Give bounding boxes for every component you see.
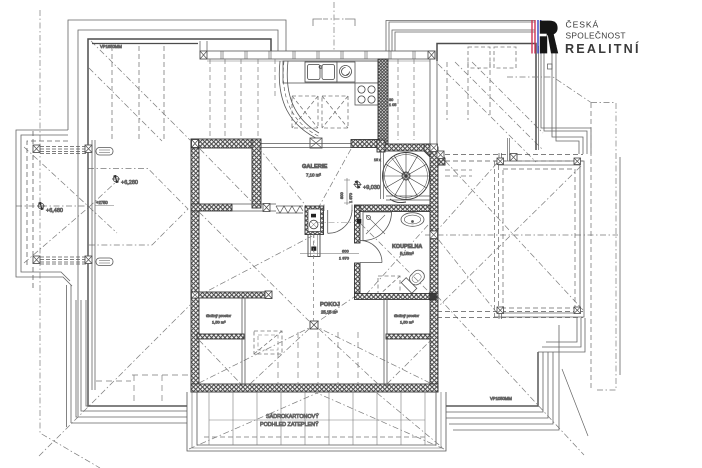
svg-text:+6,480: +6,480 <box>46 208 63 214</box>
svg-text:úložný prostor: úložný prostor <box>206 313 232 318</box>
svg-text:30: 30 <box>389 98 393 102</box>
svg-text:5,15m²: 5,15m² <box>400 251 414 256</box>
svg-text:16 x: 16 x <box>374 158 381 162</box>
svg-text:+6,280: +6,280 <box>121 180 138 186</box>
svg-text:GALERIE: GALERIE <box>302 164 327 170</box>
svg-text:600: 600 <box>342 249 349 254</box>
svg-text:1 970: 1 970 <box>339 256 350 261</box>
svg-text:+9,030: +9,030 <box>363 185 380 191</box>
svg-text:800: 800 <box>339 192 344 199</box>
svg-text:VP1050MM: VP1050MM <box>490 396 512 401</box>
svg-text:ČESKÁ: ČESKÁ <box>566 20 600 30</box>
svg-text:KOUPELNA: KOUPELNA <box>392 244 422 250</box>
svg-text:SPOLEČNOST: SPOLEČNOST <box>566 31 626 41</box>
svg-text:1,50 m²: 1,50 m² <box>400 320 414 325</box>
svg-text:REALITNÍ: REALITNÍ <box>565 41 641 56</box>
svg-text:VP1650MM: VP1650MM <box>100 44 122 49</box>
svg-text:SÁDROKARTONOVÝ: SÁDROKARTONOVÝ <box>266 413 319 420</box>
svg-text:PODHLED ZATEPLENÝ: PODHLED ZATEPLENÝ <box>260 421 319 428</box>
svg-text:POKOJ: POKOJ <box>320 302 340 308</box>
svg-text:7,10 m²: 7,10 m² <box>306 173 321 178</box>
svg-text:1 05: 1 05 <box>389 103 396 107</box>
svg-text:+2750: +2750 <box>96 200 108 205</box>
svg-text:25,15 m²: 25,15 m² <box>321 310 338 315</box>
svg-text:úložný prostor: úložný prostor <box>394 313 420 318</box>
svg-text:1 970: 1 970 <box>348 192 353 203</box>
svg-text:1,50 m²: 1,50 m² <box>212 320 226 325</box>
